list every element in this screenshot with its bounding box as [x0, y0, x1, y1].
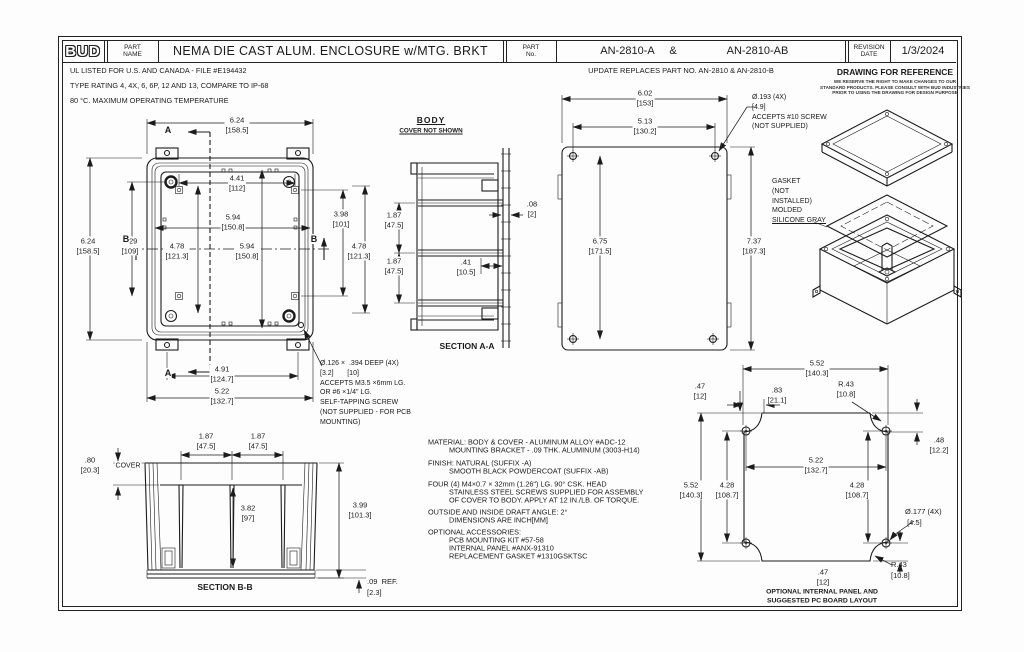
panel-caption: OPTIONAL INTERNAL PANEL AND SUGGESTED PC…: [765, 588, 879, 605]
ul-listing-note: UL LISTED FOR U.S. AND CANADA - FILE #E1…: [70, 66, 247, 76]
section-b-marker-right: B: [311, 234, 318, 244]
section-aa-drawing: [385, 140, 535, 355]
panel-dim-048: .48 [12.2]: [929, 435, 950, 454]
part-number-a: AN-2810-A: [580, 40, 675, 62]
aa-dim-41: .41 [10.5]: [456, 257, 477, 276]
titleblock-bottom-rule: [62, 62, 956, 63]
rear-dim-602: 6.02 [153]: [636, 88, 655, 107]
section-a-marker-bottom: A: [165, 368, 172, 378]
panel-dim-552-left: 5.52 [140.3]: [679, 480, 704, 499]
titleblock-sep: [503, 40, 504, 62]
front-dim-522: 5.22 [132.7]: [210, 386, 235, 405]
drawing-sheet: BUD PART NAME NEMA DIE CAST ALUM. ENCLOS…: [0, 0, 1024, 652]
panel-dim-428-right: 4.28 [108.7]: [845, 480, 870, 499]
bud-logo: BUD: [62, 40, 104, 62]
reference-heading: DRAWING FOR REFERENCE: [837, 67, 953, 77]
aa-dim-187-upper: 1.87 [47.5]: [384, 210, 405, 229]
exploded-view-drawing: [812, 100, 962, 340]
front-dim-width-top: 6.24 [158.5]: [225, 115, 250, 134]
panel-dim-083: .83 [21.1]: [767, 385, 788, 404]
rear-dim-737: 7.37 [187.3]: [742, 236, 767, 255]
body-view-title: BODY: [417, 115, 446, 125]
panel-dim-047-bottom: .47 [12]: [816, 567, 831, 586]
front-dim-441: 4.41 [112]: [228, 173, 246, 192]
bb-dim-187-left: 1.87 [47.5]: [196, 431, 217, 450]
reference-disclaimer: WE RESERVE THE RIGHT TO MAKE CHANGES TO …: [820, 79, 970, 96]
rear-view-drawing: [555, 85, 775, 365]
front-dim-594-top: 5.94 [150.8]: [221, 212, 246, 231]
ampersand: &: [663, 40, 683, 62]
body-view-subtitle: COVER NOT SHOWN: [399, 128, 462, 135]
rear-dim-675: 6.75 [171.5]: [588, 236, 613, 255]
gasket-note-material: SILICONE GRAY: [772, 216, 826, 226]
note-screws-3: OF COVER TO BODY. APPLY AT 12 IN./LB. OF…: [449, 496, 639, 505]
part-number-b: AN-2810-AB: [710, 40, 805, 62]
part-name-label: PART NAME: [107, 40, 158, 62]
front-dim-491: 4.91 [124.7]: [210, 364, 235, 383]
rear-hole-callout: Ø.193 (4X) [4.9] ACCEPTS #10 SCREW (NOT …: [752, 93, 827, 132]
panel-dim-047-top: .47 [12]: [693, 381, 708, 400]
bb-dim-382: 3.82 [97]: [240, 503, 257, 522]
drawing-title: NEMA DIE CAST ALUM. ENCLOSURE w/MTG. BRK…: [158, 40, 503, 62]
note-dimensions: DIMENSIONS ARE INCH[MM]: [449, 516, 548, 525]
section-a-marker-top: A: [165, 125, 172, 135]
panel-dim-r43-top: R.43 [10.8]: [836, 379, 857, 398]
gasket-note: GASKET (NOT INSTALLED) MOLDED: [772, 177, 812, 216]
panel-dim-552-top: 5.52 [140.3]: [805, 358, 830, 377]
note-material-2: MOUNTING BRACKET - .09 THK. ALUMINUM (30…: [449, 446, 640, 455]
bb-dim-187-right: 1.87 [47.5]: [248, 431, 269, 450]
update-note: UPDATE REPLACES PART NO. AN-2810 & AN-28…: [587, 66, 775, 76]
revision-date-label: REVISION DATE: [848, 40, 890, 62]
front-pcb-hole-callout: Ø.126 × .394 DEEP (4X) [3.2] [10] ACCEPT…: [320, 359, 411, 428]
panel-dim-r43-bottom: R.43 [10.8]: [891, 560, 910, 581]
max-temp-note: 80 °C. MAXIMUM OPERATING TEMPERATURE: [70, 96, 229, 106]
note-finish-2: SMOOTH BLACK POWDERCOAT (SUFFIX -AB): [449, 467, 608, 476]
front-dim-478-right: 4.78 [121.3]: [347, 241, 372, 260]
titleblock-sep: [104, 40, 105, 62]
bb-dim-080: .80 [20.3]: [80, 455, 101, 474]
front-dim-594-right: 5.94 [150.8]: [235, 241, 260, 260]
bb-dim-009-ref: .09 REF. [2.3]: [367, 577, 398, 598]
front-dim-height-left: 6.24 [158.5]: [76, 236, 101, 255]
titleblock-sep: [556, 40, 557, 62]
section-aa-label: SECTION A-A: [440, 341, 495, 351]
panel-dim-428-left: 4.28 [108.7]: [715, 480, 740, 499]
section-b-marker-left: B: [123, 234, 130, 244]
panel-dim-177-holes: Ø.177 (4X) [4.5]: [905, 507, 942, 528]
rear-dim-513: 5.13 [130.2]: [633, 116, 658, 135]
type-rating-note: TYPE RATING 4, 4X, 6, 6P, 12 AND 13, COM…: [70, 81, 268, 91]
note-acc-gasket: REPLACEMENT GASKET #1310GSKTSC: [449, 552, 587, 561]
front-dim-398: 3.98 [101]: [332, 209, 351, 228]
front-dim-478-left: 4.78 [121.3]: [165, 241, 190, 260]
bb-dim-399: 3.99 [101.3]: [348, 500, 373, 519]
panel-dim-522: 5.22 [132.7]: [804, 455, 829, 474]
section-bb-label: SECTION B-B: [197, 582, 252, 592]
bb-cover-label: COVER: [115, 463, 142, 472]
revision-date-value: 1/3/2024: [890, 40, 956, 62]
part-no-label: PART No.: [506, 40, 556, 62]
titleblock-sep: [845, 40, 846, 62]
aa-dim-187-lower: 1.87 [47.5]: [384, 256, 405, 275]
aa-dim-08: .08 [2]: [526, 199, 538, 218]
